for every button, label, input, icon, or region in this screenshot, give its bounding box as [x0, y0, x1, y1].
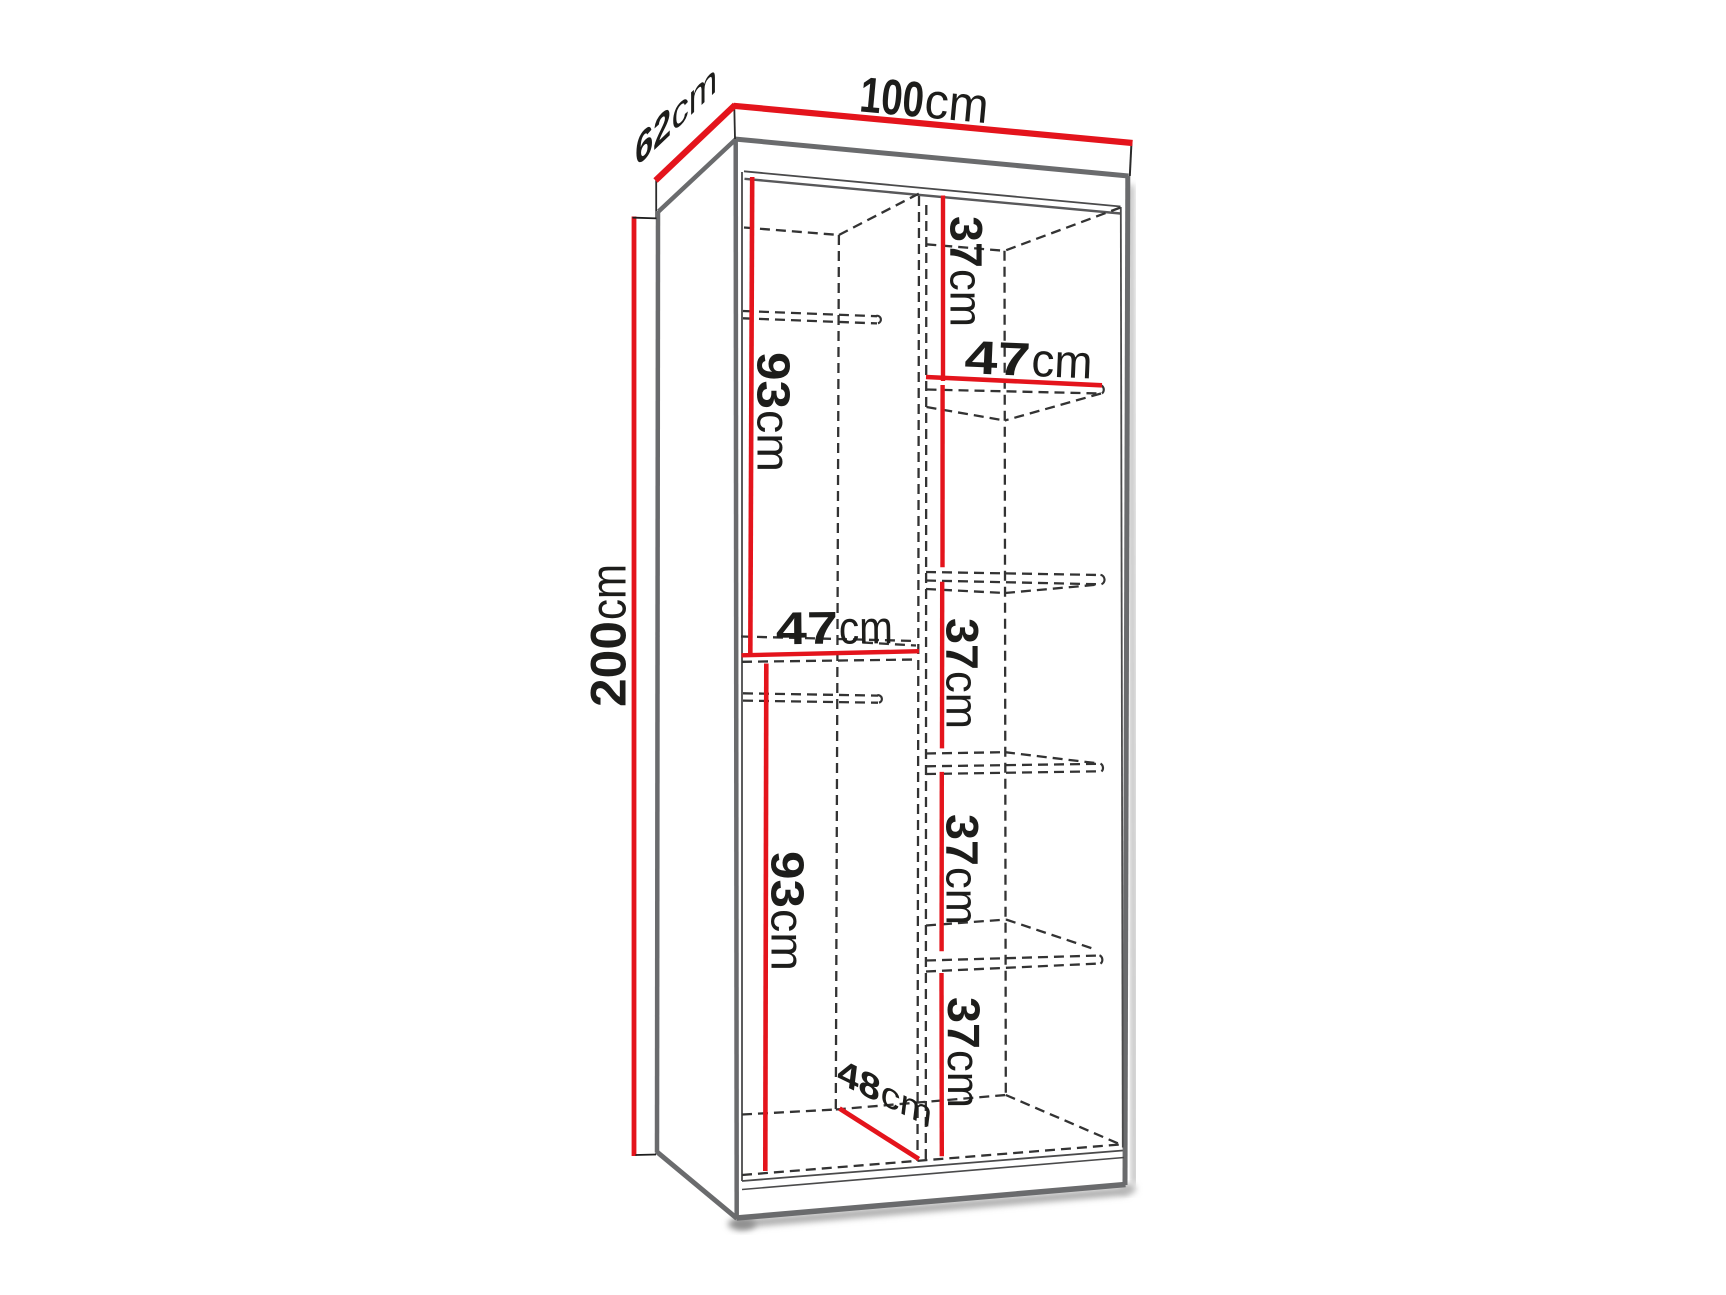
svg-text:93cm: 93cm: [762, 851, 814, 971]
svg-text:200cm: 200cm: [581, 564, 637, 707]
svg-text:37cm: 37cm: [937, 618, 988, 729]
svg-text:37cm: 37cm: [938, 997, 989, 1108]
svg-text:93cm: 93cm: [748, 352, 800, 472]
svg-text:47cm: 47cm: [964, 330, 1094, 389]
svg-text:37cm: 37cm: [941, 216, 992, 327]
svg-text:47cm: 47cm: [776, 601, 893, 654]
svg-text:37cm: 37cm: [937, 814, 988, 925]
svg-text:100cm: 100cm: [858, 66, 992, 134]
